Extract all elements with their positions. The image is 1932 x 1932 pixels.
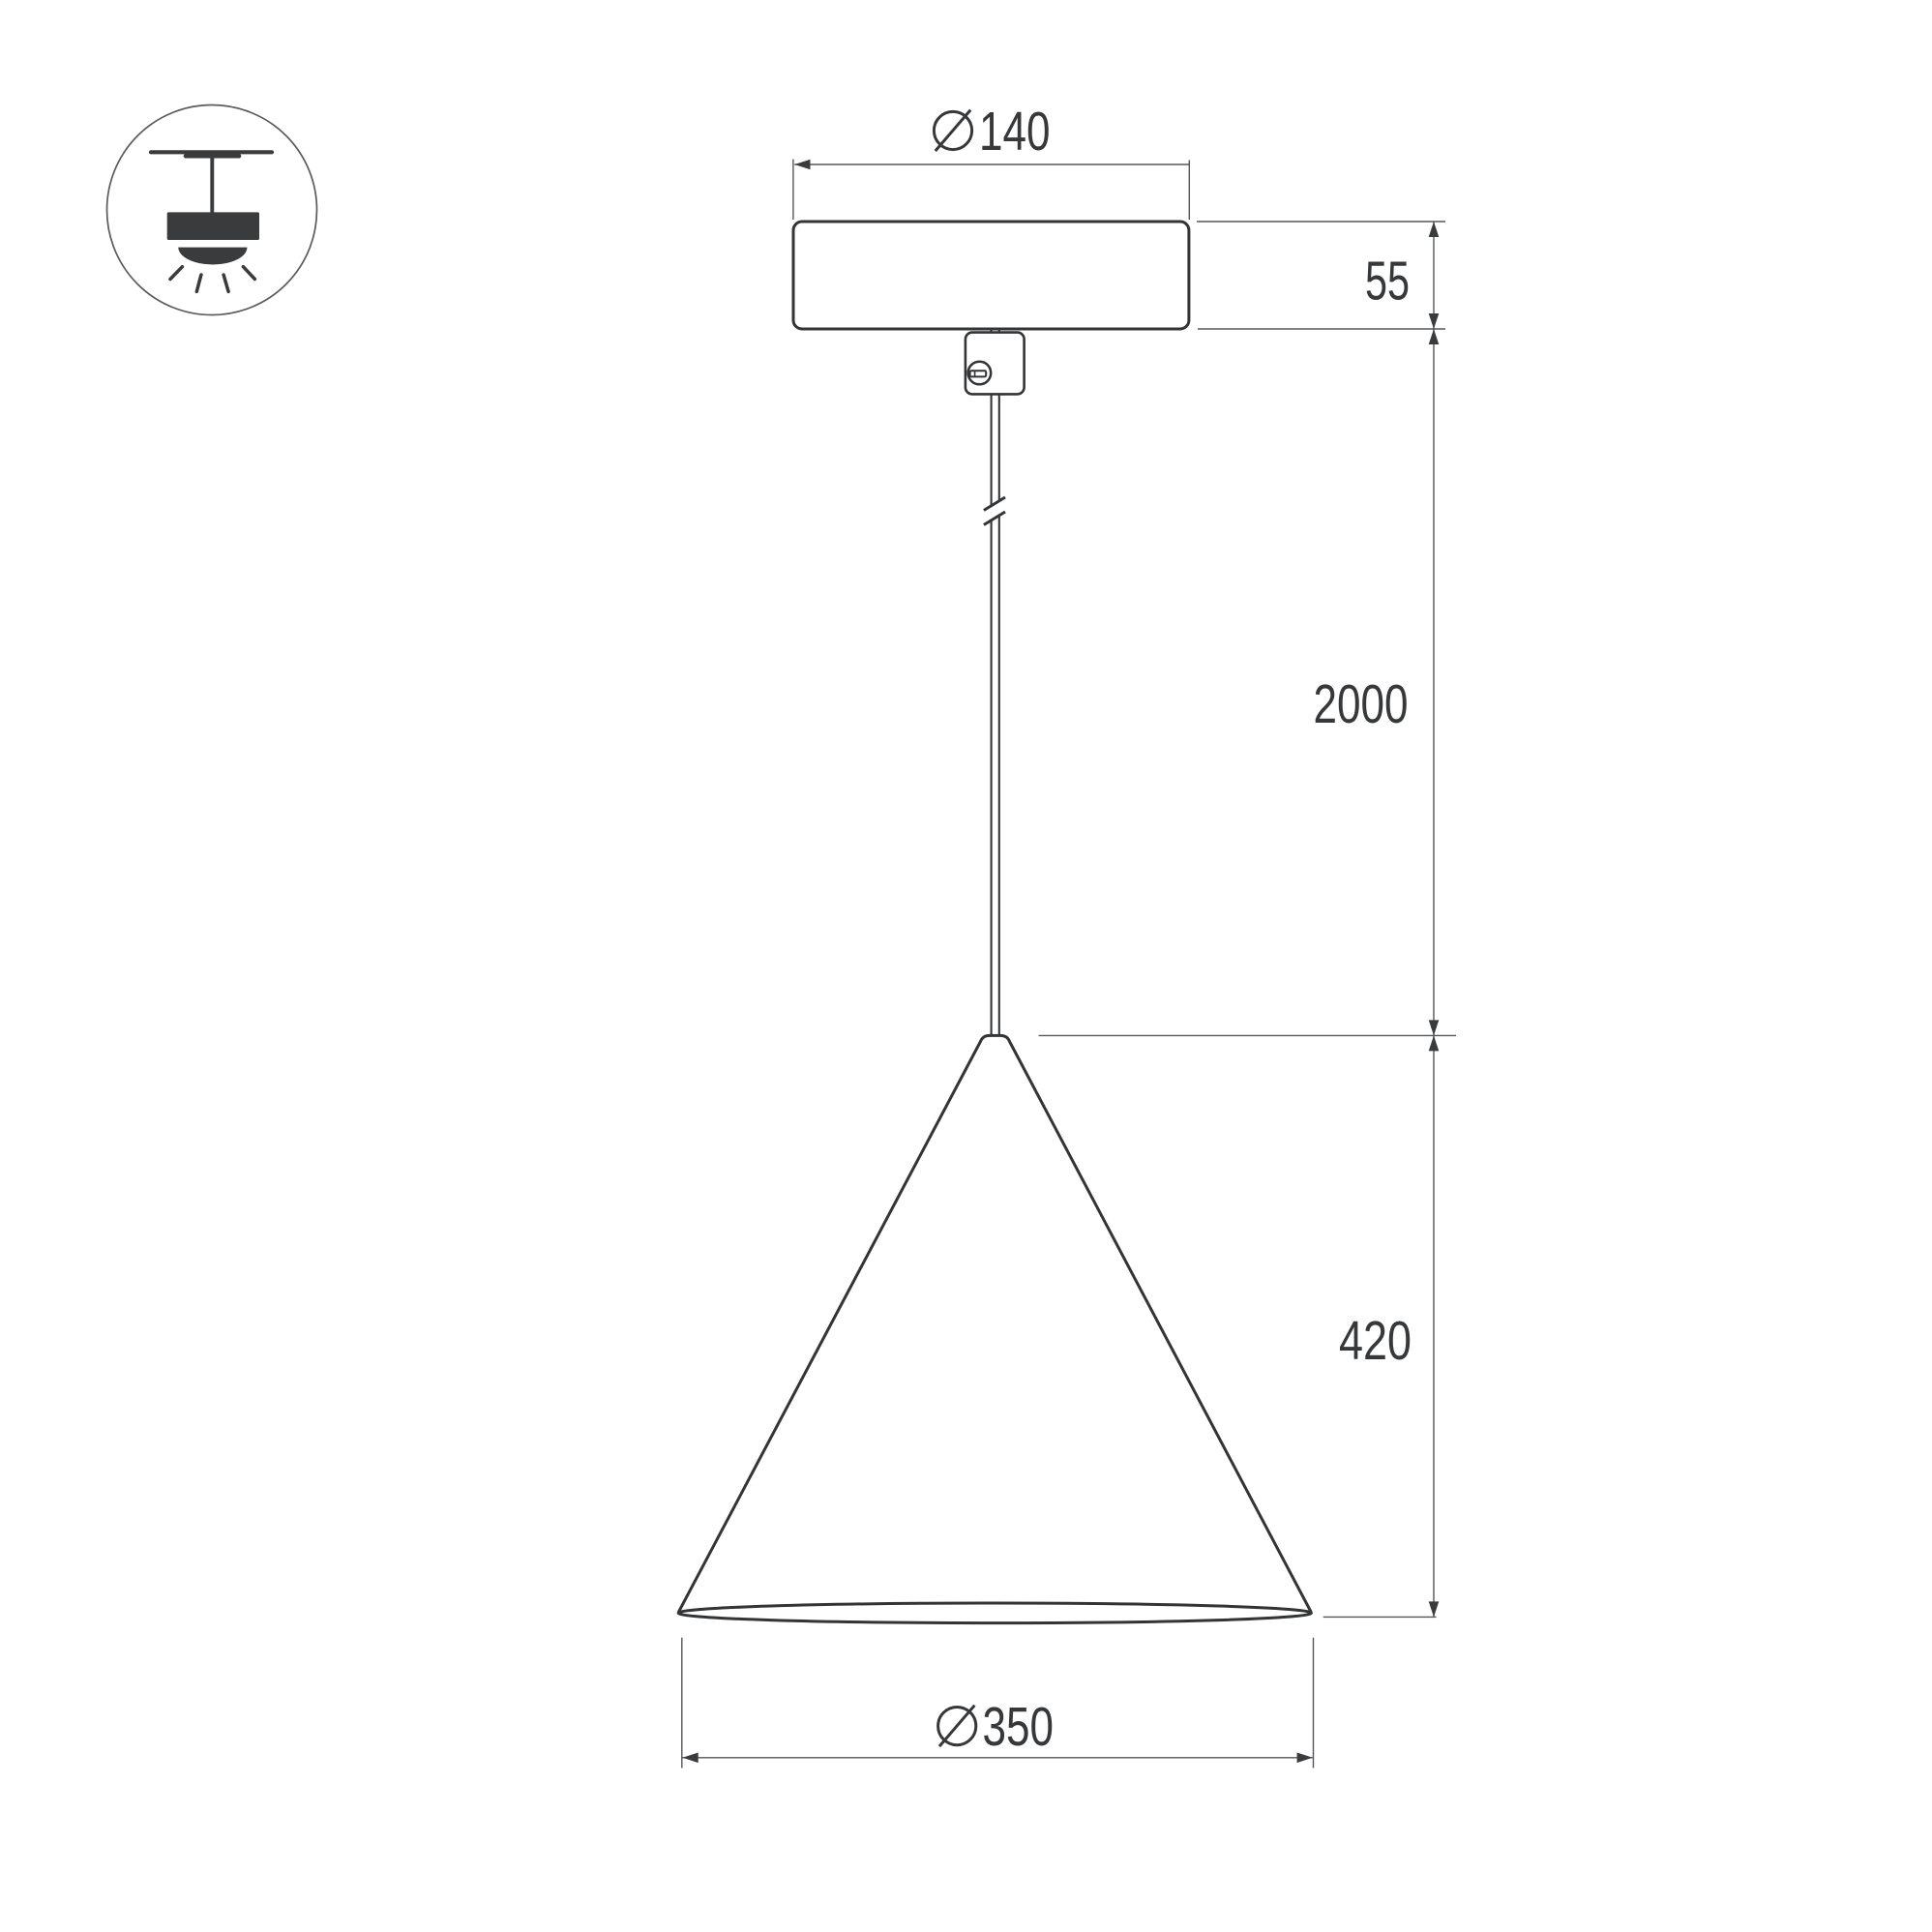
svg-text:140: 140 bbox=[979, 101, 1051, 163]
svg-text:55: 55 bbox=[1365, 251, 1410, 312]
svg-text:420: 420 bbox=[1339, 1310, 1412, 1372]
svg-text:2000: 2000 bbox=[1314, 673, 1409, 735]
svg-text:350: 350 bbox=[983, 1696, 1055, 1758]
